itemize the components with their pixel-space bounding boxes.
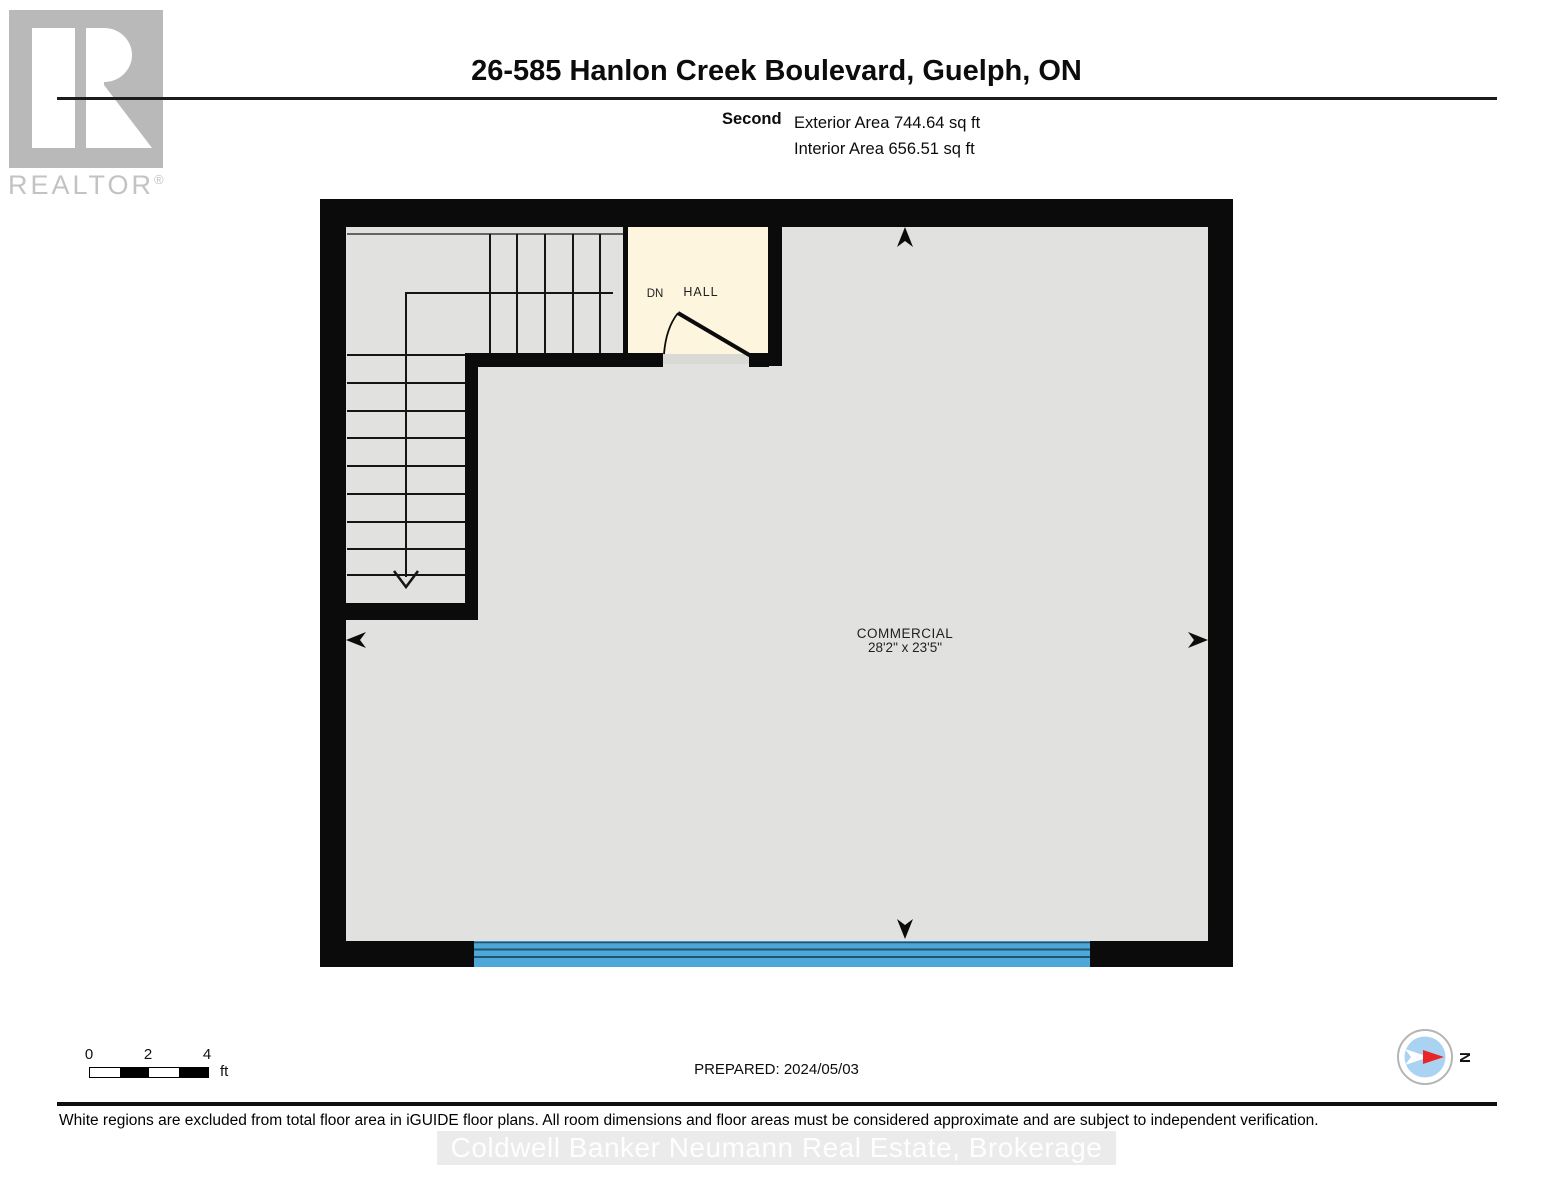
- floor-plan-drawing: DN HALL COMMERCIAL 28'2" x 23'5": [320, 195, 1235, 970]
- hall-label: HALL: [683, 285, 718, 299]
- window-strip: [474, 941, 1090, 967]
- disclaimer-text: White regions are excluded from total fl…: [59, 1112, 1319, 1130]
- commercial-label: COMMERCIAL: [857, 626, 954, 641]
- page-title: 26-585 Hanlon Creek Boulevard, Guelph, O…: [0, 55, 1553, 88]
- commercial-dimensions: 28'2" x 23'5": [868, 640, 942, 655]
- footer-divider: [57, 1102, 1497, 1106]
- registered-symbol: ®: [154, 172, 164, 187]
- prepared-date: PREPARED: 2024/05/03: [0, 1061, 1553, 1078]
- area-summary: Exterior Area 744.64 sq ft Interior Area…: [794, 110, 980, 162]
- interior-area-text: Interior Area 656.51 sq ft: [794, 136, 980, 162]
- stair-dn-label: DN: [647, 288, 664, 300]
- exterior-area-text: Exterior Area 744.64 sq ft: [794, 110, 980, 136]
- realtor-wordmark-text: REALTOR: [8, 170, 154, 200]
- compass-icon: [1396, 1028, 1454, 1086]
- realtor-wordmark: REALTOR®: [8, 170, 164, 201]
- brokerage-watermark: Coldwell Banker Neumann Real Estate, Bro…: [437, 1131, 1117, 1165]
- floor-plan-page: REALTOR® 26-585 Hanlon Creek Boulevard, …: [0, 0, 1553, 1200]
- compass-north-label: N: [1456, 1052, 1473, 1063]
- title-divider: [57, 97, 1497, 100]
- floor-name-label: Second: [722, 110, 782, 129]
- realtor-r-icon: [9, 10, 164, 170]
- door-opening: [663, 354, 749, 364]
